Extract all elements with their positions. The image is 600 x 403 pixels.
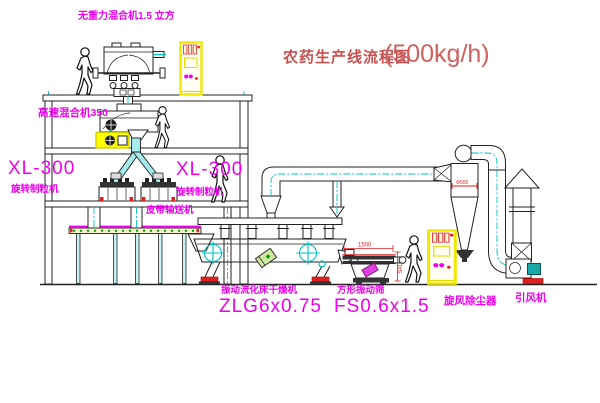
pesticide-line-flow-diagram: Φ500 1500 [0,0,600,403]
screen-length-dim: 1500 [358,243,372,249]
person-figure [406,236,423,282]
label-granulator-right-model: XL-300 [176,160,243,179]
person-figure [77,48,94,94]
label-granulator-right-name: 旋转制粒机 [176,188,224,198]
label-cyclone: 旋风除尘器 [444,296,497,307]
control-cabinet-ground [429,231,456,284]
label-screen-model: FS0.6x1.5 [334,297,430,316]
granulator-left-machine [99,173,135,201]
label-draft-fan: 引风机 [515,293,547,304]
fluid-bed-dryer [188,218,358,285]
label-granulator-left-model: XL-300 [8,159,75,178]
label-dryer-model: ZLG6x0.75 [219,297,322,316]
label-high-speed-mixer: 高速混合机350 [38,108,108,119]
label-belt-conveyor: 皮带输送机 [146,206,194,216]
label-gravity-mixer: 无重力混合机1.5 立方 [78,12,175,22]
diagram-title-capacity: (500kg/h) [384,42,490,67]
vibrating-screen: 1500 541 [343,243,406,285]
label-dryer-name: 振动流化床干燥机 [221,286,297,296]
label-granulator-left-name: 旋转制粒机 [11,185,59,195]
control-cabinet-upper [181,43,202,95]
drum-object [255,248,276,267]
label-screen-name: 方形振动筛 [337,286,385,296]
sight-glass-right [297,242,320,265]
mixer-discharge-valves [110,76,139,89]
cyclone-dimension: Φ500 [456,180,469,186]
induced-draft-fan [505,169,543,284]
belt-conveyor [69,227,201,284]
dryer-top-ports [219,225,335,239]
screen-height-dim: 541 [398,264,404,273]
exhaust-duct [261,167,448,218]
granulator-right-machine [141,173,177,201]
stack-arrow-cap [505,169,539,188]
discharge-ducts [88,207,142,228]
